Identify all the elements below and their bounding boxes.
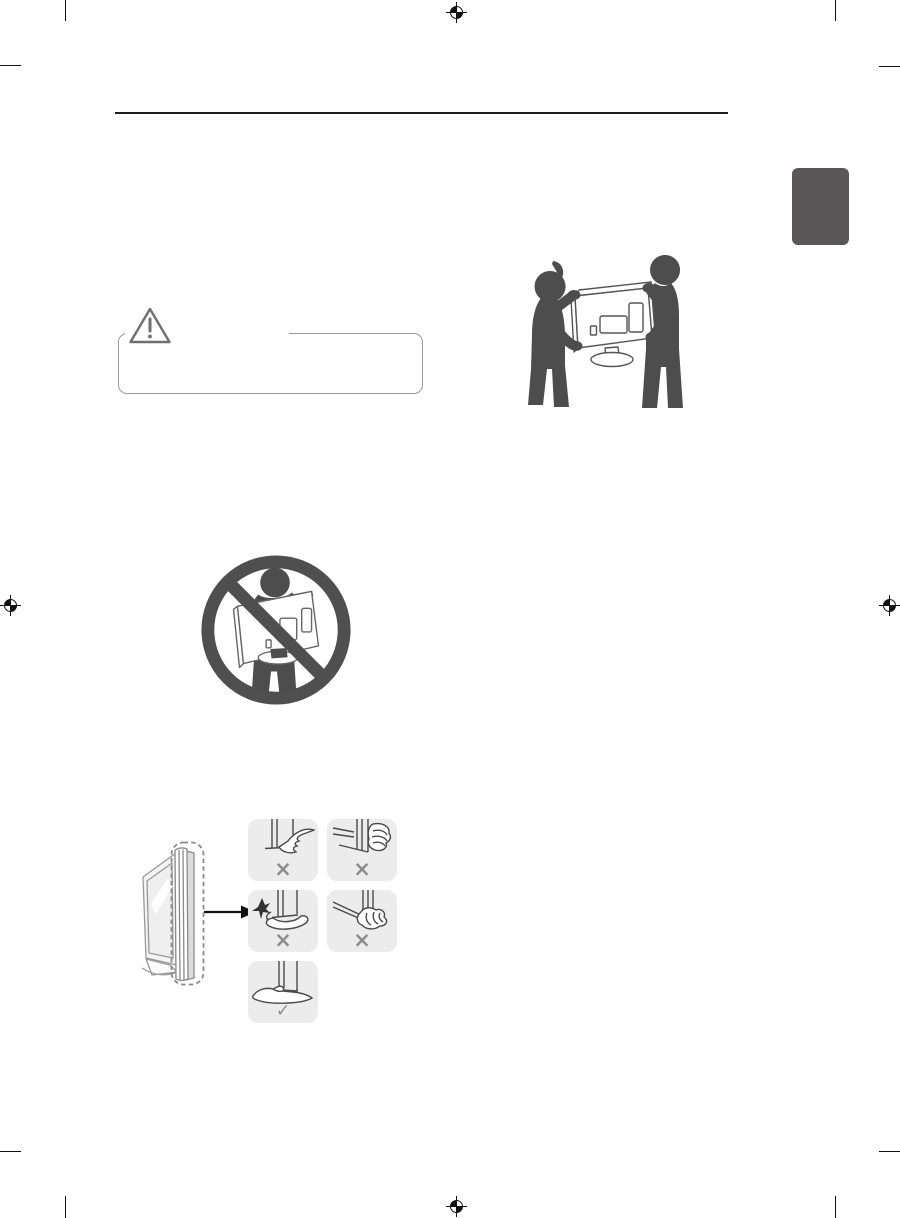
crop-mark: [0, 65, 21, 66]
no-single-person-carry-illustration: [197, 551, 355, 709]
x-mark: ×: [248, 930, 318, 951]
registration-target-icon: [0, 595, 21, 616]
crop-mark: [65, 1196, 66, 1218]
warning-triangle-icon: [128, 306, 172, 346]
x-mark: ×: [248, 859, 318, 880]
tv-side-view-illustration: [112, 840, 212, 990]
two-person-carry-illustration: [505, 247, 695, 412]
x-mark: ×: [327, 930, 397, 951]
registration-target-icon: [446, 2, 467, 23]
header-rule: [115, 112, 728, 114]
registration-target-icon: [446, 1196, 467, 1217]
crop-mark: [0, 1151, 21, 1152]
crop-mark: [65, 0, 66, 21]
crop-mark: [835, 1196, 836, 1218]
x-mark: ×: [327, 859, 397, 880]
grip-tile-flat-hand-support: ✓: [248, 961, 318, 1023]
check-mark: ✓: [248, 1001, 318, 1022]
grip-tile-top-side-edge: ×: [327, 819, 397, 881]
grip-guide-tiles: × × ×: [248, 819, 397, 1023]
registration-target-icon: [879, 595, 900, 616]
grip-tile-rear-bottom-edge: ×: [327, 890, 397, 952]
crop-mark: [879, 66, 900, 67]
crop-mark: [835, 0, 836, 21]
chapter-tab: [792, 168, 849, 245]
grip-tile-front-bottom-edge: ×: [248, 819, 318, 881]
grip-tile-press-screen: ×: [248, 890, 318, 952]
crop-mark: [879, 1151, 900, 1152]
